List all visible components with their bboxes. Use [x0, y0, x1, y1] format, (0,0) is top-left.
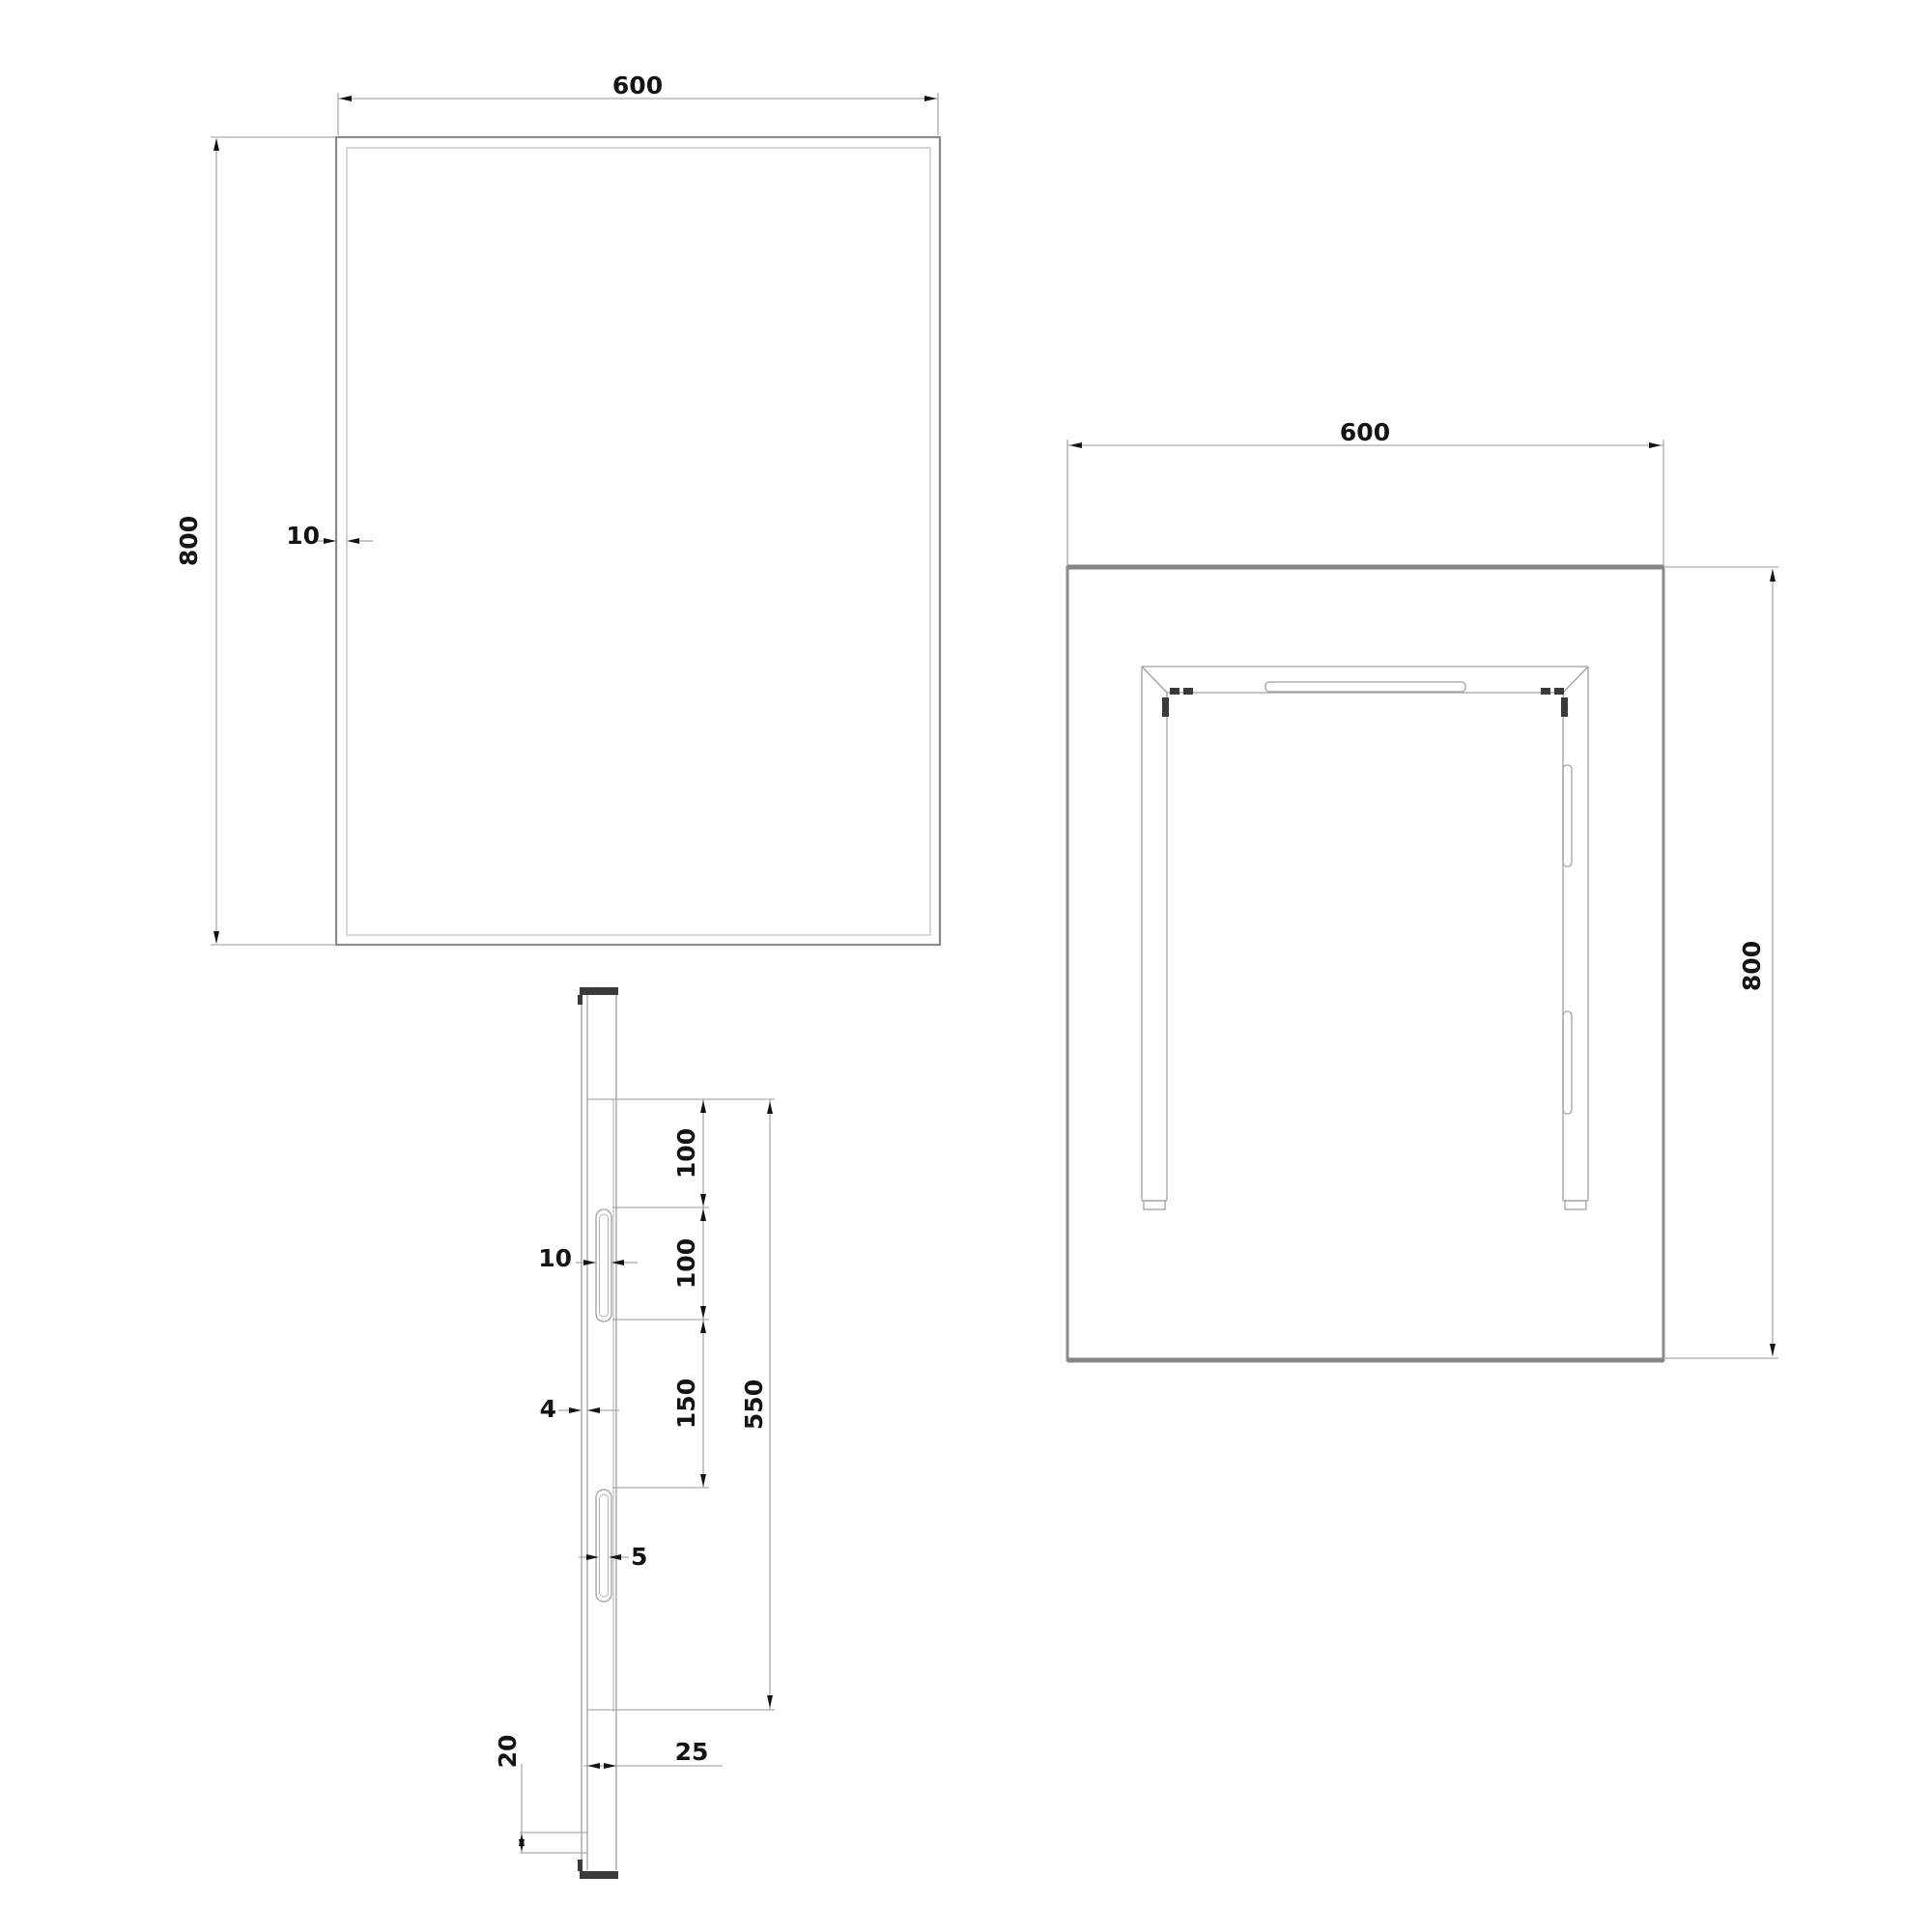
- arrowhead-left: [1069, 442, 1082, 448]
- bottom-clearance-label: 20: [494, 1735, 522, 1769]
- front-view: 600 800 10: [175, 71, 940, 945]
- slot-top-offset-label: 100: [672, 1128, 700, 1179]
- slot-opening-label: 5: [631, 1543, 647, 1571]
- mirror-drawing-svg: 600 800 10: [0, 0, 1932, 1932]
- slot-outer: [596, 1209, 611, 1321]
- right-bar-strip-upper: [1563, 765, 1572, 867]
- arrowhead-right: [604, 1763, 616, 1769]
- arrowhead-right: [569, 1407, 582, 1413]
- side-chained-dimensions: 100 100 150: [672, 1099, 706, 1488]
- back-width-dimension: 600: [1067, 418, 1663, 565]
- arrowhead-down: [1770, 1344, 1776, 1356]
- slot-length-label: 100: [672, 1238, 700, 1289]
- arrowhead-up: [700, 1100, 706, 1113]
- arrowhead-left: [609, 1554, 621, 1560]
- back-width-label: 600: [1340, 418, 1390, 446]
- back-outer-rect: [1067, 567, 1663, 1360]
- depth-label: 25: [675, 1738, 709, 1766]
- front-height-label: 800: [175, 516, 203, 566]
- arrowhead-left: [339, 96, 352, 101]
- back-view: 600 800: [1067, 418, 1778, 1360]
- slot-inner: [600, 1494, 609, 1597]
- top-cap: [580, 987, 618, 995]
- rear-mounting-frame: [1142, 667, 1588, 1209]
- front-frame-inset-label: 10: [286, 522, 320, 550]
- arrowhead-up: [213, 138, 219, 151]
- top-cap-nub: [578, 995, 582, 1005]
- arrowhead-right: [1649, 442, 1662, 448]
- arrowhead-left: [347, 538, 359, 544]
- slot-inner: [600, 1214, 609, 1317]
- fixing-mark: [1170, 688, 1179, 695]
- side-back-panel-height-dimension: 550: [740, 1099, 773, 1710]
- front-width-dimension: 600: [338, 71, 938, 135]
- arrowhead-up: [767, 1101, 773, 1114]
- fixing-mark: [1183, 688, 1193, 695]
- side-view: 100 100 150 550 10 4: [494, 987, 775, 1879]
- bottom-cap-nub: [578, 1860, 582, 1871]
- mounting-slot-lower: [596, 1490, 611, 1602]
- front-width-label: 600: [612, 71, 663, 99]
- arrowhead-right: [583, 1260, 596, 1265]
- arrowhead-down: [213, 931, 219, 944]
- arrowhead-right: [924, 96, 937, 101]
- arrowhead-left: [587, 1407, 600, 1413]
- fixing-mark: [1162, 697, 1169, 717]
- right-bar-strip-lower: [1563, 1011, 1572, 1114]
- glass-thickness-label: 4: [540, 1395, 556, 1423]
- mounting-slot-upper: [596, 1209, 611, 1321]
- back-height-label: 800: [1738, 941, 1766, 991]
- frame-left-foot: [1144, 1201, 1165, 1209]
- arrowhead-right: [586, 1554, 599, 1560]
- arrowhead-down: [767, 1695, 773, 1708]
- side-depth-dimension: 25: [583, 1738, 723, 1769]
- frame-bevel-right: [1563, 667, 1588, 693]
- front-frame-inset-dimension: 10: [286, 522, 373, 550]
- side-bottom-clearance-dimension: 20: [494, 1735, 525, 1853]
- arrowhead-right: [324, 538, 336, 544]
- frame-bevel-left: [1142, 667, 1167, 693]
- slot-spacing-label: 150: [672, 1378, 700, 1429]
- bracket-thickness-label: 10: [538, 1244, 572, 1272]
- frame-right-foot: [1565, 1201, 1586, 1209]
- arrowhead-down: [700, 1474, 706, 1487]
- bottom-cap: [580, 1871, 618, 1879]
- fixing-mark: [1541, 688, 1550, 695]
- front-inner-rect: [347, 148, 930, 935]
- arrowhead-up: [1770, 569, 1776, 582]
- arrowhead-up: [700, 1321, 706, 1333]
- fixing-mark: [1561, 697, 1568, 717]
- side-glass-thickness-dimension: 4: [540, 1395, 619, 1423]
- back-panel-height-label: 550: [740, 1379, 768, 1430]
- arrowhead-down: [700, 1194, 706, 1207]
- technical-drawing-canvas: 600 800 10: [0, 0, 1932, 1932]
- top-hanging-bracket: [1265, 682, 1465, 692]
- arrowhead-up: [700, 1208, 706, 1221]
- front-outer-rect: [336, 137, 940, 945]
- arrowhead-left: [587, 1763, 600, 1769]
- fixing-mark: [1554, 688, 1564, 695]
- back-height-dimension: 800: [1665, 567, 1778, 1358]
- slot-outer: [596, 1490, 611, 1602]
- arrowhead-down: [700, 1306, 706, 1319]
